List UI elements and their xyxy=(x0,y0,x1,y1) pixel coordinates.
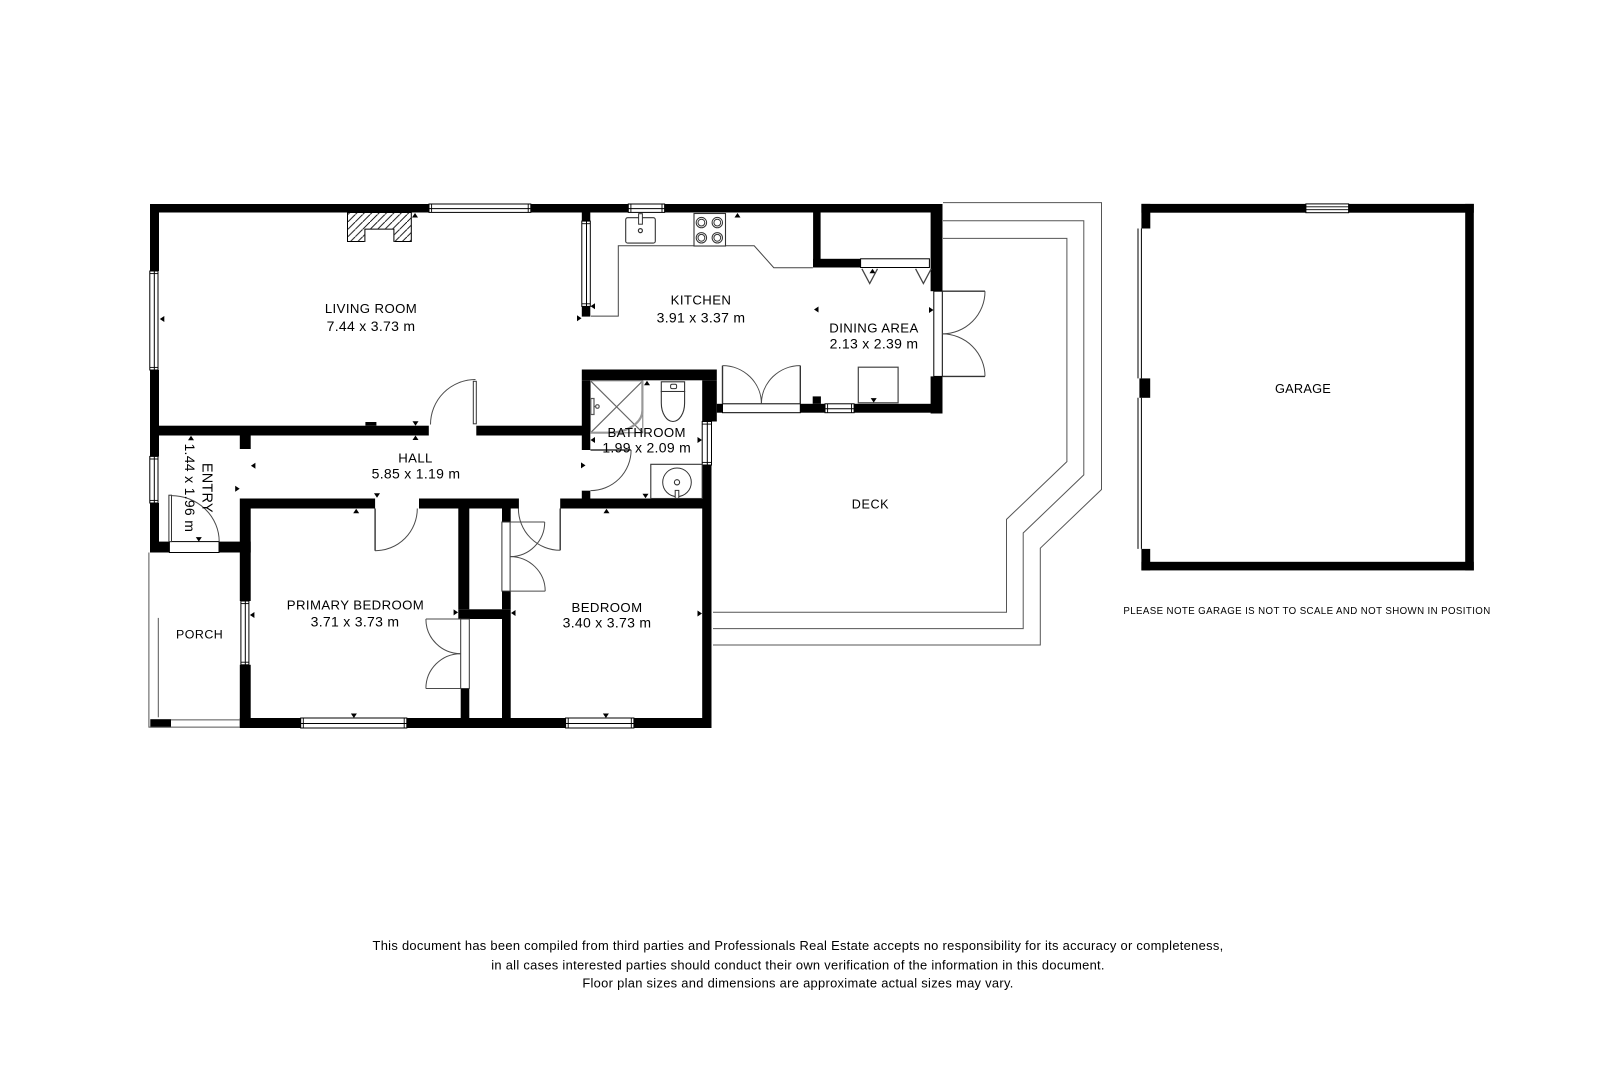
svg-text:3.40 x 3.73 m: 3.40 x 3.73 m xyxy=(563,615,652,631)
svg-text:Floor plan sizes and dimension: Floor plan sizes and dimensions are appr… xyxy=(582,976,1013,991)
svg-text:HALL: HALL xyxy=(398,451,433,466)
svg-text:2.13 x 2.39 m: 2.13 x 2.39 m xyxy=(830,336,919,352)
svg-text:ENTRY: ENTRY xyxy=(199,463,215,513)
svg-text:DECK: DECK xyxy=(852,498,889,512)
svg-text:BATHROOM: BATHROOM xyxy=(607,425,685,440)
svg-text:3.71 x 3.73 m: 3.71 x 3.73 m xyxy=(311,614,400,630)
svg-text:in all cases interested partie: in all cases interested parties should c… xyxy=(491,957,1105,972)
svg-text:PLEASE NOTE GARAGE IS NOT TO S: PLEASE NOTE GARAGE IS NOT TO SCALE AND N… xyxy=(1123,606,1490,617)
svg-text:GARAGE: GARAGE xyxy=(1275,381,1331,396)
svg-text:1.99 x 2.09 m: 1.99 x 2.09 m xyxy=(602,440,691,456)
svg-text:This document has been compile: This document has been compiled from thi… xyxy=(373,938,1224,953)
svg-text:PRIMARY BEDROOM: PRIMARY BEDROOM xyxy=(287,597,424,612)
svg-text:1.44 x 1.96 m: 1.44 x 1.96 m xyxy=(182,443,198,532)
svg-text:7.44 x 3.73 m: 7.44 x 3.73 m xyxy=(327,318,416,334)
svg-text:LIVING ROOM: LIVING ROOM xyxy=(325,301,417,316)
svg-text:BEDROOM: BEDROOM xyxy=(572,600,643,615)
svg-text:KITCHEN: KITCHEN xyxy=(671,293,732,308)
svg-text:5.85 x 1.19 m: 5.85 x 1.19 m xyxy=(372,465,461,481)
svg-text:3.91 x 3.37 m: 3.91 x 3.37 m xyxy=(657,310,746,326)
svg-text:PORCH: PORCH xyxy=(176,627,223,641)
svg-text:DINING AREA: DINING AREA xyxy=(829,321,918,336)
